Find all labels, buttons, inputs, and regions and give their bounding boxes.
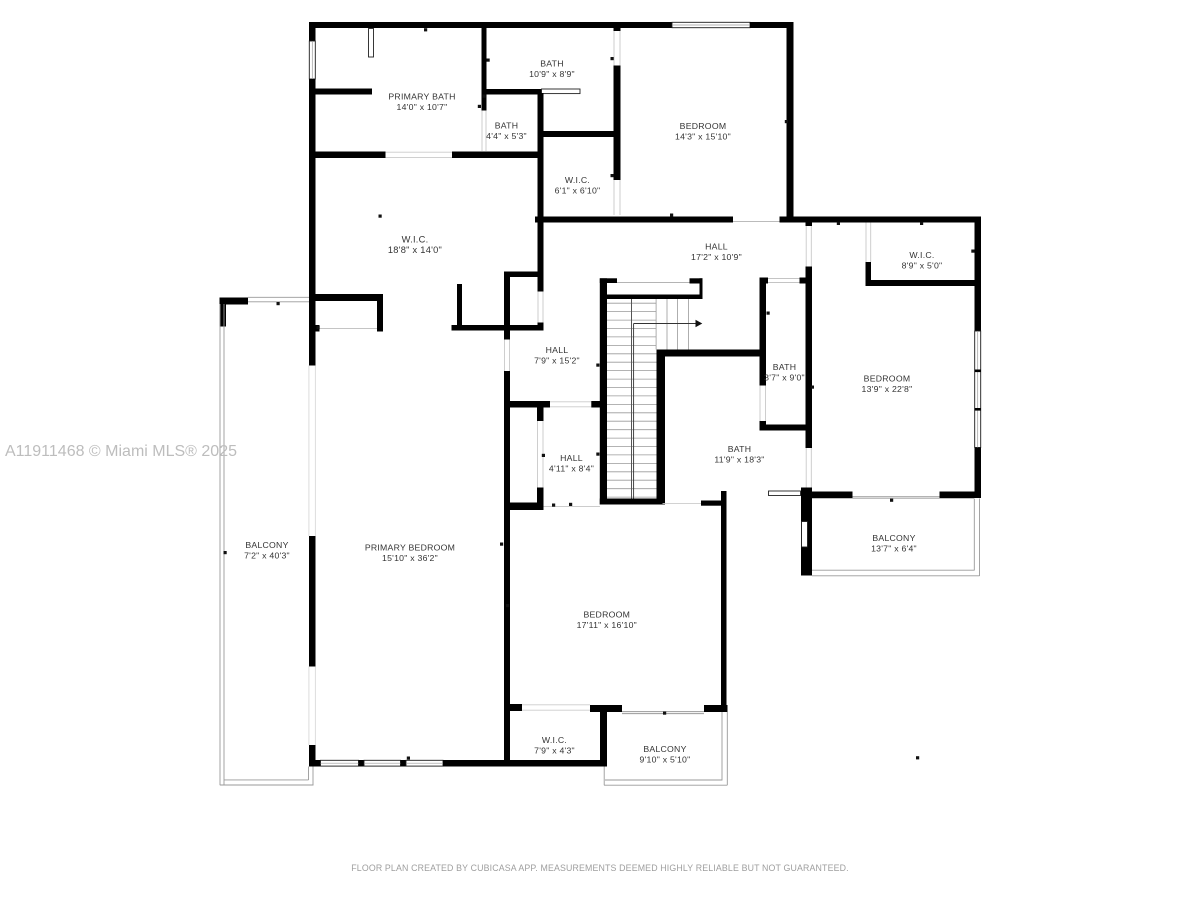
svg-text:BALCONY: BALCONY	[643, 744, 686, 754]
svg-text:4'11" x 8'4": 4'11" x 8'4"	[549, 464, 594, 474]
svg-text:7'9" x 4'3": 7'9" x 4'3"	[534, 746, 575, 756]
svg-text:8'9" x 5'0": 8'9" x 5'0"	[902, 261, 943, 271]
svg-text:FLOOR PLAN CREATED BY CUBICASA: FLOOR PLAN CREATED BY CUBICASA APP. MEAS…	[351, 863, 848, 873]
svg-text:17'2" x 10'9": 17'2" x 10'9"	[691, 252, 742, 262]
svg-text:W.I.C.: W.I.C.	[402, 235, 429, 245]
svg-text:W.I.C.: W.I.C.	[542, 735, 567, 745]
svg-text:7'9" x 15'2": 7'9" x 15'2"	[534, 356, 580, 366]
svg-text:BEDROOM: BEDROOM	[583, 609, 630, 619]
svg-text:6'1" x 6'10": 6'1" x 6'10"	[555, 186, 601, 196]
svg-text:18'8" x 14'0": 18'8" x 14'0"	[388, 245, 442, 255]
svg-text:4'4" x 5'3": 4'4" x 5'3"	[486, 131, 527, 141]
svg-text:3'7" x 9'0": 3'7" x 9'0"	[764, 373, 805, 383]
svg-text:BALCONY: BALCONY	[872, 533, 915, 543]
svg-text:BEDROOM: BEDROOM	[680, 121, 727, 131]
svg-text:14'0" x 10'7": 14'0" x 10'7"	[397, 102, 448, 112]
svg-text:W.I.C.: W.I.C.	[565, 175, 590, 185]
svg-text:A11911468 © Miami MLS® 2025: A11911468 © Miami MLS® 2025	[5, 443, 237, 460]
svg-text:10'9" x 8'9": 10'9" x 8'9"	[529, 69, 575, 79]
svg-text:11'9" x 18'3": 11'9" x 18'3"	[714, 455, 764, 465]
svg-text:7'2" x 40'3": 7'2" x 40'3"	[244, 551, 290, 561]
svg-text:BALCONY: BALCONY	[245, 540, 288, 550]
svg-text:HALL: HALL	[705, 242, 728, 252]
svg-text:13'9" x 22'8": 13'9" x 22'8"	[862, 384, 913, 394]
svg-text:HALL: HALL	[546, 345, 569, 355]
svg-text:BATH: BATH	[495, 121, 519, 131]
svg-text:BATH: BATH	[540, 58, 564, 68]
svg-text:W.I.C.: W.I.C.	[909, 250, 934, 260]
svg-text:BATH: BATH	[728, 444, 752, 454]
svg-text:BEDROOM: BEDROOM	[864, 374, 911, 384]
svg-text:BATH: BATH	[773, 362, 797, 372]
svg-text:9'10" x 5'10": 9'10" x 5'10"	[640, 755, 691, 765]
svg-text:14'3" x 15'10": 14'3" x 15'10"	[675, 131, 731, 141]
svg-text:17'11" x 16'10": 17'11" x 16'10"	[577, 620, 637, 630]
svg-text:HALL: HALL	[560, 453, 583, 463]
svg-text:PRIMARY BATH: PRIMARY BATH	[388, 91, 455, 101]
svg-text:PRIMARY BEDROOM: PRIMARY BEDROOM	[365, 542, 455, 552]
svg-text:13'7" x 6'4": 13'7" x 6'4"	[871, 544, 917, 554]
svg-text:15'10" x 36'2": 15'10" x 36'2"	[382, 553, 438, 563]
